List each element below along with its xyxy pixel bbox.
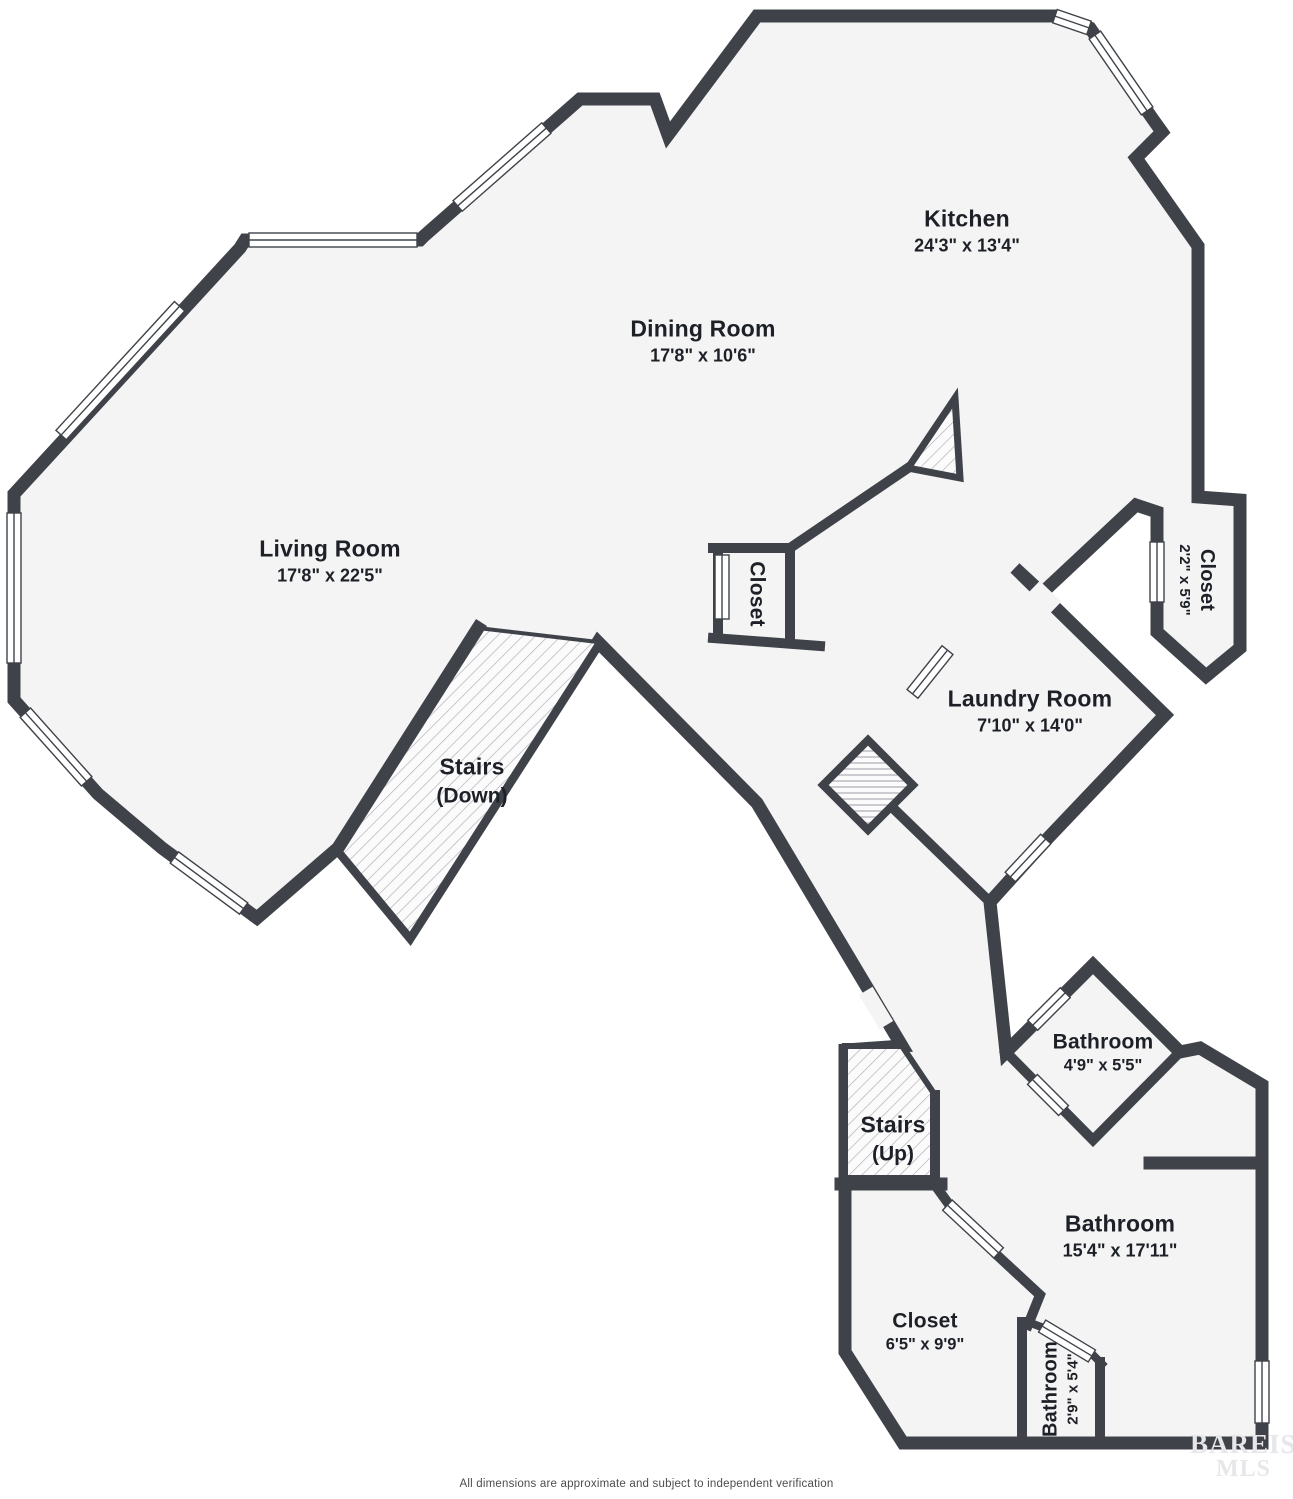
door-opening (715, 555, 729, 619)
room-label-laundry-room: Laundry Room 7'10" x 14'0" (948, 684, 1113, 737)
room-label-living-room: Living Room 17'8" x 22'5" (259, 534, 400, 587)
floorplan-drawing (0, 0, 1293, 1499)
room-label-bathroom-large: Bathroom 15'4" x 17'11" (1063, 1209, 1178, 1262)
window (249, 233, 417, 247)
window (1255, 1361, 1269, 1423)
watermark-line2: MLS (1190, 1458, 1293, 1481)
room-label-closet-lower: Closet 6'5" x 9'9" (886, 1308, 965, 1357)
watermark-line1: BAREIS® (1190, 1432, 1293, 1458)
room-label-bathroom-small-upper: Bathroom 4'9" x 5'5" (1053, 1029, 1154, 1078)
room-label-closet-middle: Closet (743, 561, 770, 626)
mls-watermark: BAREIS® MLS (1190, 1432, 1293, 1480)
window (7, 513, 21, 663)
window (1150, 542, 1164, 602)
room-label-kitchen: Kitchen 24'3" x 13'4" (914, 204, 1020, 257)
floorplan-page: { "palette": { "wall": "#3f4349", "floor… (0, 0, 1293, 1499)
room-label-closet-right: Closet 2'2" x 5'9" (1174, 544, 1220, 615)
room-label-dining-room: Dining Room 17'8" x 10'6" (630, 314, 775, 367)
room-label-stairs-up: Stairs (Up) (860, 1110, 925, 1167)
disclaimer-text: All dimensions are approximate and subje… (0, 1478, 1293, 1490)
room-label-bathroom-small-lower: Bathroom 2'9" x 5'4" (1037, 1341, 1083, 1437)
room-label-stairs-down: Stairs (Down) (436, 752, 507, 809)
